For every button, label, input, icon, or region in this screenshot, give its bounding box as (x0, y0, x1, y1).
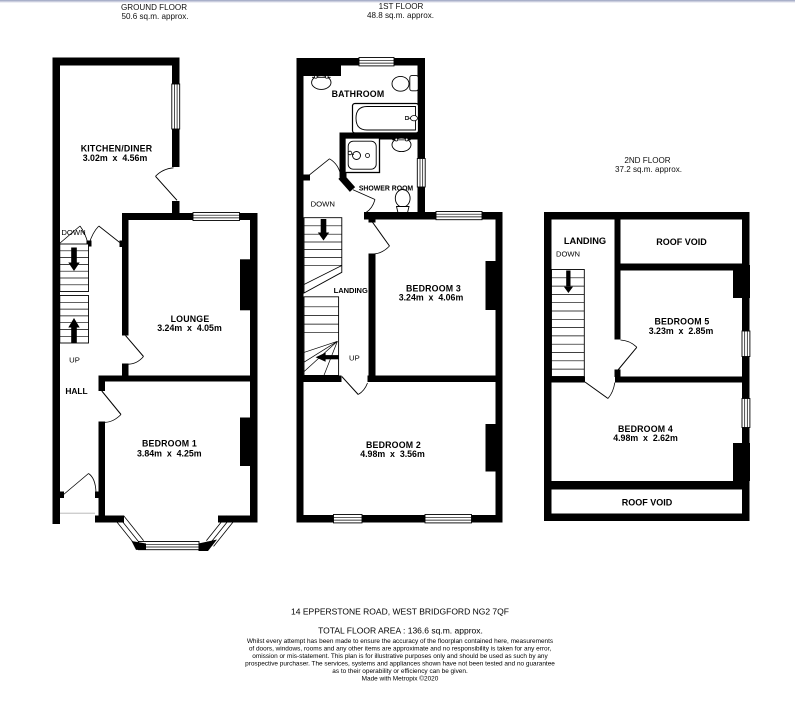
svg-text:1ST FLOOR: 1ST FLOOR (379, 2, 424, 11)
svg-text:3.84m x 4.25m: 3.84m x 4.25m (137, 448, 202, 458)
svg-text:3.24m x 4.06m: 3.24m x 4.06m (399, 293, 464, 303)
svg-text:ROOF VOID: ROOF VOID (622, 497, 673, 507)
svg-text:3.02m x 4.56m: 3.02m x 4.56m (83, 153, 148, 163)
svg-text:DOWN: DOWN (556, 249, 580, 258)
svg-text:2ND FLOOR: 2ND FLOOR (624, 156, 670, 165)
svg-text:SHOWER ROOM: SHOWER ROOM (359, 186, 414, 193)
svg-text:of doors, windows, rooms and a: of doors, windows, rooms and any other i… (249, 646, 552, 653)
svg-text:3.23m x 2.85m: 3.23m x 2.85m (649, 326, 714, 336)
svg-text:omission or mis-statement. Thi: omission or mis-statement. This plan is … (252, 653, 548, 660)
svg-text:LANDING: LANDING (334, 286, 368, 295)
svg-text:LANDING: LANDING (564, 236, 606, 246)
svg-text:3.24m x 4.05m: 3.24m x 4.05m (157, 323, 222, 333)
svg-text:50.6 sq.m. approx.: 50.6 sq.m. approx. (121, 12, 188, 21)
svg-text:Whilst every attempt has been: Whilst every attempt has been made to en… (247, 638, 553, 645)
svg-text:48.8 sq.m. approx.: 48.8 sq.m. approx. (367, 11, 434, 20)
svg-text:14 EPPERSTONE ROAD, WEST BRIDG: 14 EPPERSTONE ROAD, WEST BRIDGFORD NG2 7… (291, 607, 509, 617)
svg-text:ROOF VOID: ROOF VOID (656, 237, 707, 247)
svg-text:as to their operability or eff: as to their operability or efficiency ca… (332, 668, 468, 675)
svg-text:GROUND FLOOR: GROUND FLOOR (121, 3, 187, 12)
svg-text:KITCHEN/DINER: KITCHEN/DINER (81, 143, 153, 153)
svg-text:TOTAL FLOOR AREA : 136.6 sq.m.: TOTAL FLOOR AREA : 136.6 sq.m. approx. (318, 626, 483, 636)
svg-text:DOWN: DOWN (311, 200, 335, 209)
svg-text:4.98m x 2.62m: 4.98m x 2.62m (613, 433, 678, 443)
svg-text:37.2 sq.m. approx.: 37.2 sq.m. approx. (615, 165, 682, 174)
svg-text:HALL: HALL (65, 386, 87, 396)
svg-text:prospective purchaser. The ser: prospective purchaser. The services, sys… (245, 661, 555, 668)
svg-text:Made with Metropix ©2020: Made with Metropix ©2020 (362, 675, 439, 683)
svg-text:UP: UP (349, 354, 360, 363)
svg-text:BEDROOM 1: BEDROOM 1 (142, 439, 197, 449)
svg-text:4.98m x 3.56m: 4.98m x 3.56m (360, 449, 425, 459)
svg-text:UP: UP (69, 356, 80, 365)
svg-text:DOWN: DOWN (61, 228, 85, 237)
svg-text:BATHROOM: BATHROOM (332, 89, 385, 99)
